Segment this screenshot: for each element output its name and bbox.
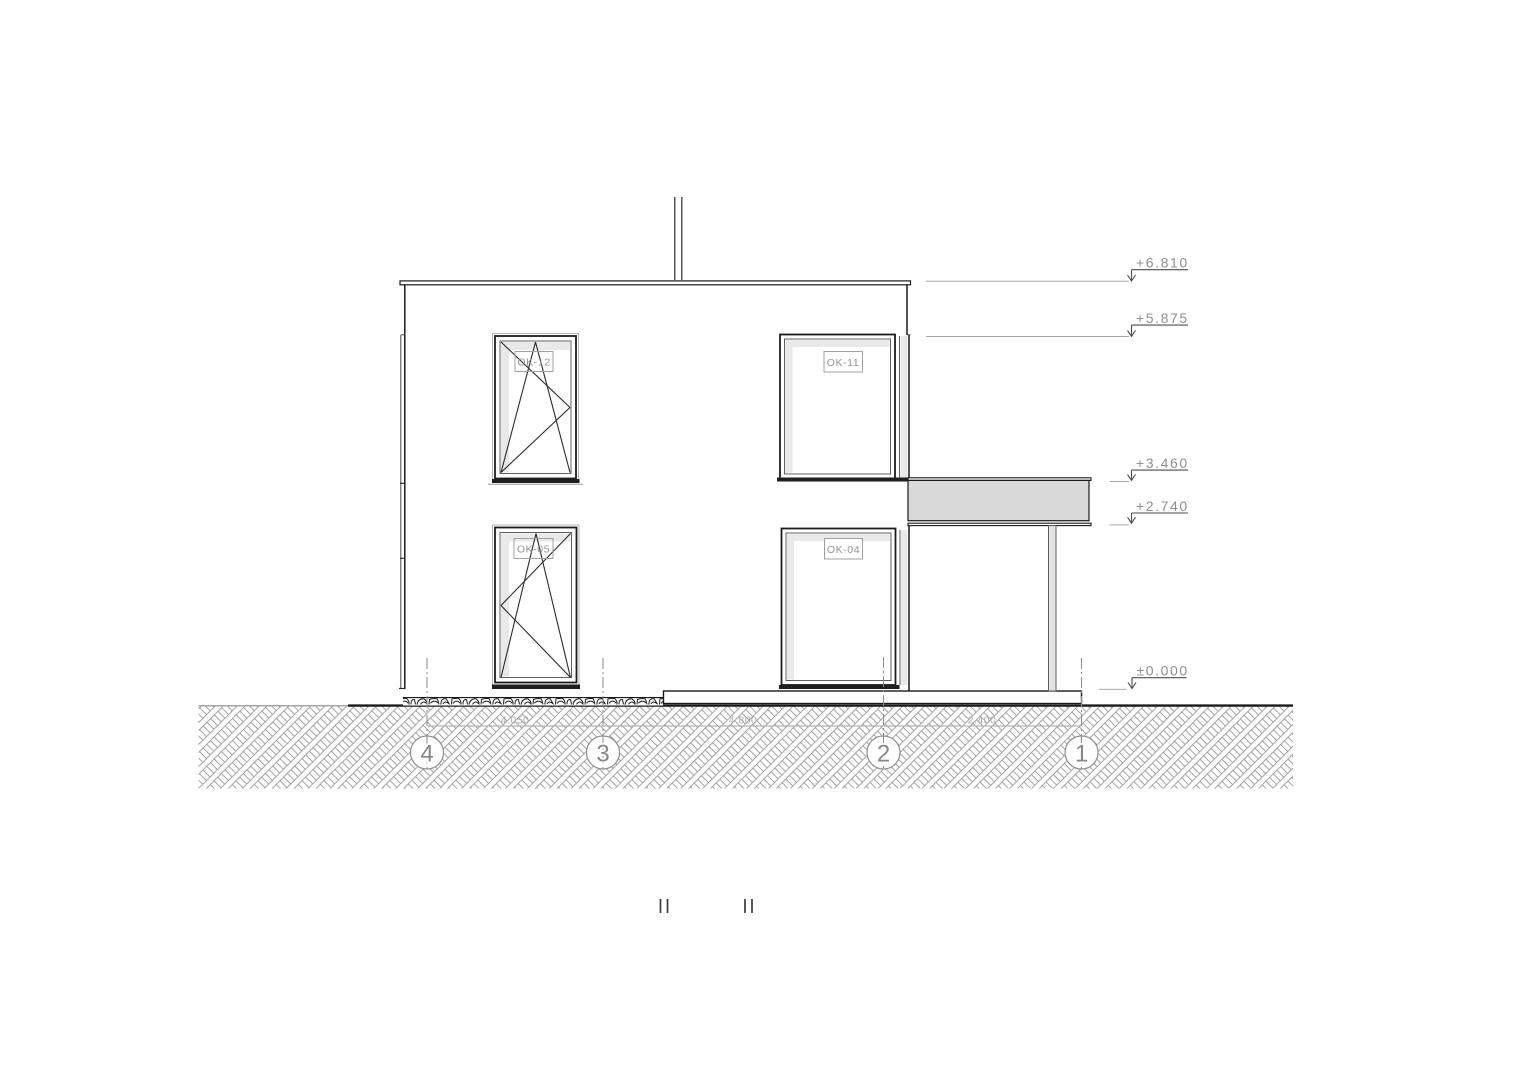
svg-text:OK-04: OK-04 [827,544,860,556]
svg-text:OK-11: OK-11 [827,357,860,369]
svg-text:OK-05: OK-05 [517,544,550,556]
svg-text:2.400: 2.400 [968,715,997,727]
svg-text:+3.460: +3.460 [1136,455,1189,471]
svg-text:3: 3 [596,740,609,767]
svg-text:2: 2 [877,740,890,767]
svg-text:4.050: 4.050 [501,715,530,727]
svg-text:+6.810: +6.810 [1136,255,1189,271]
svg-text:±0.000: ±0.000 [1137,663,1189,679]
svg-text:+5.875: +5.875 [1136,310,1189,326]
svg-text:+2.740: +2.740 [1136,498,1189,514]
svg-text:1: 1 [1075,740,1088,767]
svg-text:4.800: 4.800 [729,715,758,727]
svg-text:4: 4 [420,740,433,767]
svg-text:OK-12: OK-12 [517,357,550,369]
